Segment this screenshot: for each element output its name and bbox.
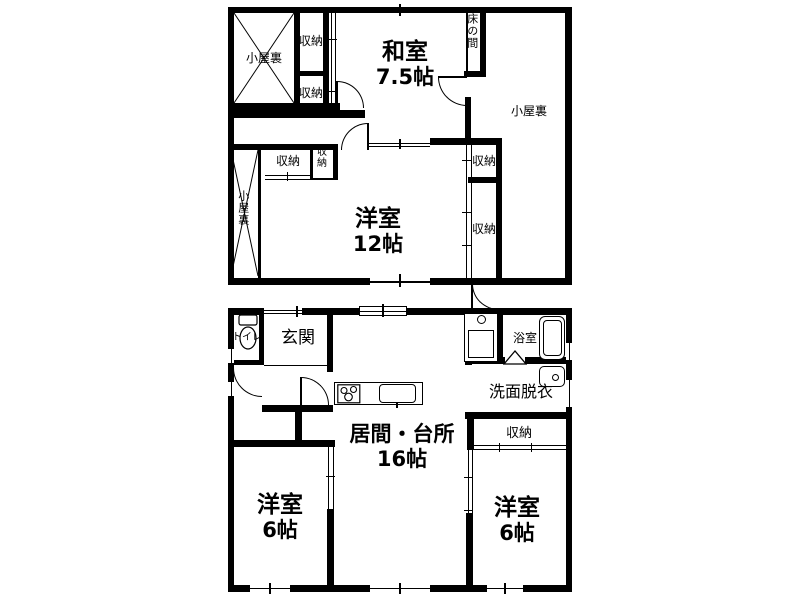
dimension-tick bbox=[269, 583, 271, 594]
dimension-tick bbox=[399, 4, 401, 16]
room-label-closet: 収納 bbox=[297, 34, 325, 49]
room-label-closet: 収納 bbox=[494, 426, 544, 442]
dimension-tick bbox=[327, 91, 337, 92]
washbasin-drain bbox=[552, 374, 559, 381]
room-name: 洋室 bbox=[467, 495, 567, 521]
room-label-toilet: トイレ bbox=[228, 332, 266, 345]
dimension-tick bbox=[464, 477, 473, 478]
room-label-yoshitsu-left: 洋室 6帖 bbox=[230, 492, 330, 543]
wall bbox=[228, 440, 335, 447]
wall bbox=[228, 110, 365, 118]
window-line bbox=[569, 343, 570, 360]
sliding-door-line bbox=[474, 449, 566, 450]
wall bbox=[465, 412, 566, 419]
room-name: 居間・台所 bbox=[337, 422, 467, 447]
wall bbox=[258, 144, 261, 278]
folding-door-icon bbox=[503, 350, 527, 365]
wall bbox=[294, 71, 329, 76]
wall bbox=[228, 103, 340, 110]
sliding-door-line bbox=[333, 447, 334, 509]
dimension-tick bbox=[499, 443, 500, 452]
dimension-tick bbox=[399, 274, 401, 287]
window-line bbox=[231, 382, 232, 396]
sliding-door-line bbox=[265, 179, 313, 180]
room-label-tokonoma: 床の間 bbox=[465, 13, 479, 49]
sliding-door-line bbox=[331, 9, 332, 108]
room-label-yoshitsu-right: 洋室 6帖 bbox=[467, 495, 567, 546]
wall bbox=[327, 308, 333, 372]
room-size: 6帖 bbox=[467, 521, 567, 546]
room-label-closet: 収納 bbox=[470, 154, 498, 169]
room-size: 16帖 bbox=[337, 447, 467, 472]
stove-icon bbox=[337, 384, 361, 404]
dimension-tick bbox=[462, 212, 471, 213]
room-size: 7.5帖 bbox=[350, 65, 460, 90]
wall bbox=[468, 177, 502, 183]
window-line bbox=[231, 349, 232, 363]
room-label-closet: 収納 bbox=[313, 146, 326, 168]
door-arc bbox=[301, 377, 329, 405]
wall bbox=[480, 7, 486, 77]
door-arc bbox=[341, 123, 368, 150]
faucet-mark bbox=[396, 402, 398, 408]
window-line bbox=[569, 380, 570, 407]
kitchen-sink bbox=[379, 384, 416, 403]
room-label-closet: 収納 bbox=[297, 86, 325, 101]
room-label-bath: 浴室 bbox=[502, 331, 548, 346]
dimension-tick bbox=[531, 443, 532, 452]
dimension-tick bbox=[382, 304, 384, 317]
wall bbox=[262, 405, 333, 412]
dimension-tick bbox=[327, 39, 337, 40]
genkan-step-line bbox=[264, 365, 328, 366]
door-arc bbox=[472, 284, 499, 310]
room-label-senmen: 洗面脱衣 bbox=[477, 382, 565, 402]
room-size: 6帖 bbox=[230, 518, 330, 543]
dimension-tick bbox=[462, 245, 471, 246]
sliding-door-line bbox=[265, 175, 313, 176]
room-label-genkan: 玄関 bbox=[272, 328, 324, 349]
dimension-tick bbox=[326, 476, 335, 477]
room-label-closet: 収納 bbox=[264, 154, 312, 169]
wall bbox=[333, 144, 338, 180]
dimension-tick bbox=[504, 583, 506, 594]
room-label-attic-left: 小屋裏 bbox=[236, 190, 250, 226]
sliding-door-line bbox=[313, 178, 335, 180]
dimension-tick bbox=[287, 172, 288, 181]
wall bbox=[464, 71, 486, 77]
sliding-door-line bbox=[474, 445, 566, 446]
washer-pan bbox=[468, 330, 494, 358]
room-label-attic-top-left: 小屋裏 bbox=[234, 51, 294, 66]
dimension-tick bbox=[399, 139, 401, 149]
floor-plan: 小屋裏 収納 収納 和室 7.5帖 床の間 小屋裏 小屋裏 収納 収納 洋室 1… bbox=[0, 0, 800, 600]
room-name: 洋室 bbox=[323, 206, 433, 232]
room-label-closet: 収納 bbox=[470, 222, 498, 237]
room-name: 和室 bbox=[350, 39, 460, 65]
room-label-attic-right: 小屋裏 bbox=[499, 104, 559, 119]
room-size: 12帖 bbox=[323, 232, 433, 257]
dimension-tick bbox=[399, 583, 401, 594]
room-label-washitsu: 和室 7.5帖 bbox=[350, 39, 460, 90]
room-name: 洋室 bbox=[230, 492, 330, 518]
room-label-living-kitchen: 居間・台所 16帖 bbox=[337, 422, 467, 472]
dimension-tick bbox=[296, 306, 298, 317]
wall bbox=[430, 138, 502, 145]
room-label-yoshitsu12: 洋室 12帖 bbox=[323, 206, 433, 257]
wall bbox=[565, 7, 572, 285]
washer-faucet-circle bbox=[477, 315, 486, 324]
wall bbox=[467, 412, 474, 450]
door-arc bbox=[233, 368, 262, 397]
